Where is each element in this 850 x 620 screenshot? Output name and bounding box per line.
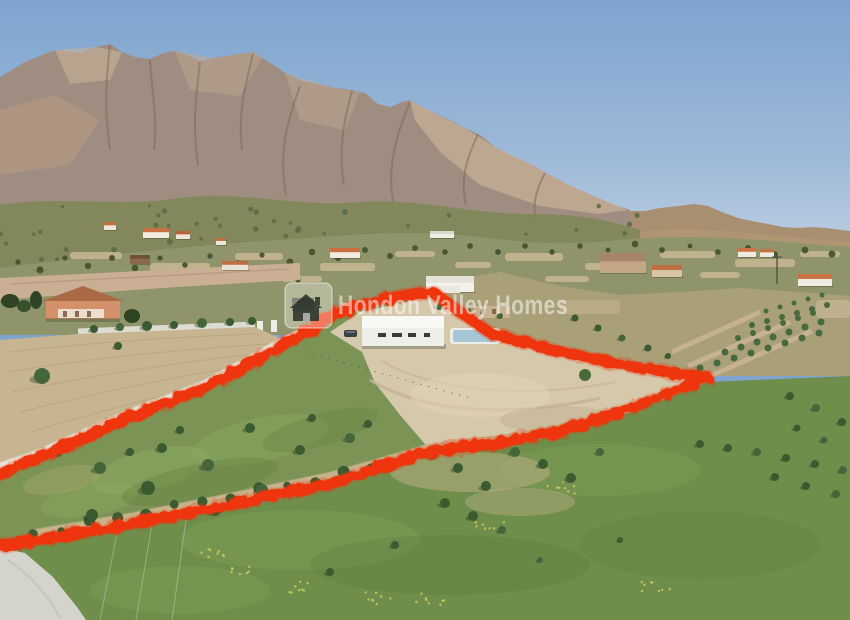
aerial-photo: Hondon Valley Homes: [0, 0, 850, 620]
house-icon: [285, 283, 332, 328]
new-build-villa: [362, 316, 446, 349]
watermark-text: Hondon Valley Homes: [338, 290, 568, 320]
